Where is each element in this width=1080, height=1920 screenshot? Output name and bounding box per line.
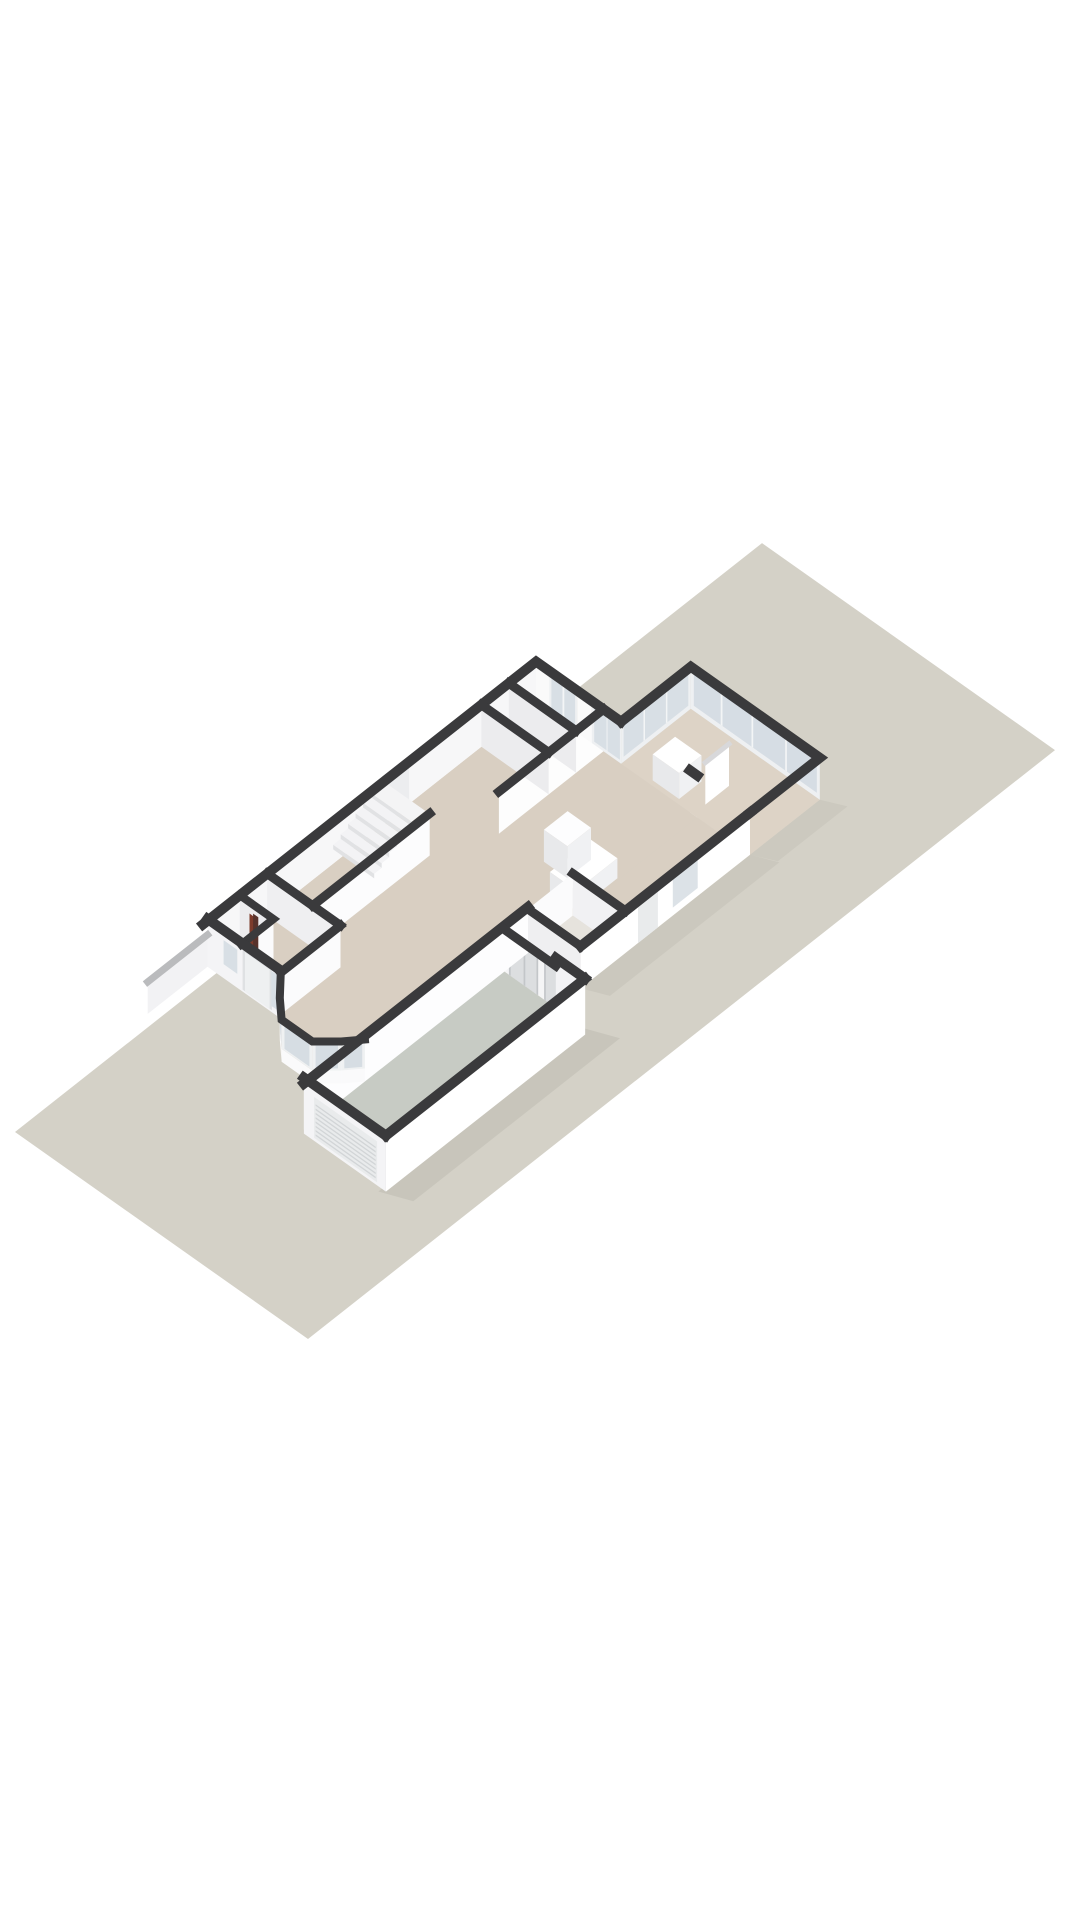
floorplan-3d-render [0,0,1080,1920]
conservatory-ne-mullion [721,692,723,726]
conservatory-nw-mullion [666,689,668,723]
conservatory-ne-mullion [752,714,754,748]
wall-cap-rear-stub [690,770,697,775]
conservatory-nw-mullion [644,707,646,741]
floorplan-3d-page [0,0,1080,1920]
conservatory-ne-mullion [785,737,787,771]
bay-window-sill [341,1069,365,1084]
rear-window-mullion [563,684,565,717]
